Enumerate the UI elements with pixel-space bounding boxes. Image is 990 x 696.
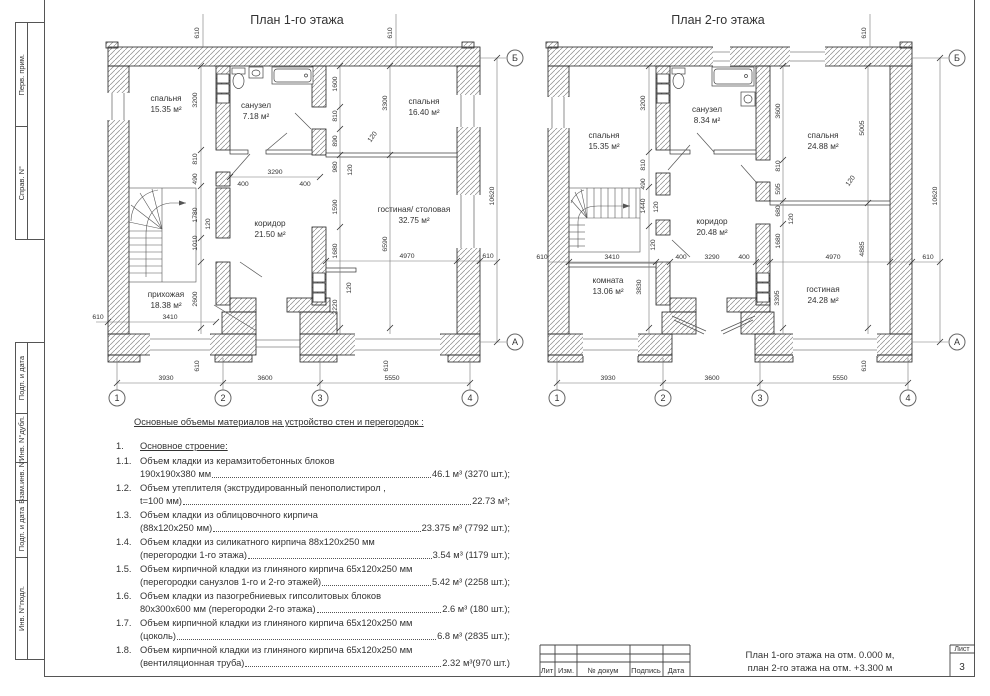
stamp-col-dokum: № докум <box>588 666 619 675</box>
svg-text:4: 4 <box>905 393 910 403</box>
material-value: 46.1 м³ (3270 шт.); <box>432 468 510 481</box>
svg-text:610: 610 <box>922 254 934 261</box>
room-label: спальня <box>588 131 619 140</box>
svg-text:610: 610 <box>482 253 494 260</box>
svg-text:3410: 3410 <box>162 314 177 321</box>
plan1-bathroom-fixtures <box>232 67 313 89</box>
material-item: 1.7. Объем кирпичной кладки из глиняного… <box>100 617 510 643</box>
svg-text:610: 610 <box>92 314 104 321</box>
room-label: гостиная/ столовая <box>378 205 451 214</box>
floor-plan-1-drawing: План 1-го этажа <box>90 5 538 410</box>
dotted-leader <box>212 477 431 478</box>
svg-text:1440: 1440 <box>640 198 647 213</box>
svg-text:400: 400 <box>299 181 311 188</box>
margin-cell-blank <box>27 342 45 660</box>
plan2-stairs <box>569 188 640 252</box>
room-label: спальня <box>408 97 439 106</box>
room-area: 15.35 м² <box>150 105 181 114</box>
margin-label: Инв. N°дубл. <box>17 416 26 461</box>
material-value: 2.6 м³ (180 шт.); <box>442 603 510 616</box>
svg-text:3290: 3290 <box>704 254 719 261</box>
svg-text:490: 490 <box>640 178 647 190</box>
svg-text:120: 120 <box>845 174 857 187</box>
svg-text:2: 2 <box>660 393 665 403</box>
drawing-title-line2: план 2-го этажа на отм. +3.300 м <box>748 663 893 674</box>
room-label: спальня <box>150 94 181 103</box>
room-area: 7.18 м² <box>243 112 270 121</box>
svg-text:3600: 3600 <box>704 375 719 382</box>
svg-text:3930: 3930 <box>600 375 615 382</box>
dotted-leader <box>322 585 431 586</box>
material-item: 1.1. Объем кладки из керамзитобетонных б… <box>100 455 510 481</box>
dotted-leader <box>248 558 432 559</box>
svg-text:3: 3 <box>317 393 322 403</box>
material-line1: Объем кладки из облицовочного кирпича <box>140 509 510 522</box>
materials-list: Основные объемы материалов на устройство… <box>100 416 510 671</box>
stamp-col-podpis: Подпись <box>631 666 661 675</box>
svg-text:120: 120 <box>347 164 354 176</box>
plan1-stairs <box>129 188 196 282</box>
svg-text:400: 400 <box>738 254 750 261</box>
plan1-room-labels: спальня 15.35 м² санузел 7.18 м² спальня… <box>148 94 451 310</box>
svg-text:1590: 1590 <box>332 199 339 214</box>
room-label: прихожая <box>148 290 185 299</box>
dotted-leader <box>245 666 441 667</box>
svg-text:10620: 10620 <box>932 186 939 205</box>
svg-text:595: 595 <box>775 183 782 195</box>
svg-text:120: 120 <box>367 130 379 143</box>
material-value: 22.73 м³; <box>472 495 510 508</box>
svg-text:Б: Б <box>512 53 518 63</box>
room-label: коридор <box>696 217 728 226</box>
room-area: 8.34 м² <box>694 116 721 125</box>
material-item: 1.8. Объем кирпичной кладки из глиняного… <box>100 644 510 670</box>
svg-text:2: 2 <box>220 393 225 403</box>
plan2-partitions <box>569 150 890 267</box>
material-value: 5.42 м³ (2258 шт.); <box>432 576 510 589</box>
material-value: 3.54 м³ (1179 шт.); <box>433 549 510 562</box>
svg-text:1780: 1780 <box>192 207 199 222</box>
svg-text:3290: 3290 <box>267 169 282 176</box>
material-item: 1.3. Объем кладки из облицовочного кирпи… <box>100 509 510 535</box>
svg-text:1680: 1680 <box>775 233 782 248</box>
material-item: 1.4. Объем кладки из силикатного кирпича… <box>100 536 510 562</box>
material-line1: Объем кладки из керамзитобетонных блоков <box>140 455 510 468</box>
svg-text:120: 120 <box>650 239 657 251</box>
svg-text:10620: 10620 <box>489 186 496 205</box>
margin-label: Взам.инв. N° <box>17 459 26 504</box>
svg-text:1: 1 <box>114 393 119 403</box>
svg-text:610: 610 <box>387 27 394 39</box>
stamp-col-data: Дата <box>668 666 685 675</box>
room-label: санузел <box>692 105 722 114</box>
svg-text:5550: 5550 <box>832 375 847 382</box>
room-label: коридор <box>254 219 286 228</box>
svg-text:2220: 2220 <box>332 299 339 314</box>
svg-text:3410: 3410 <box>604 254 619 261</box>
svg-text:А: А <box>512 337 518 347</box>
dotted-leader <box>183 504 471 505</box>
svg-text:3600: 3600 <box>257 375 272 382</box>
svg-text:810: 810 <box>640 159 647 171</box>
svg-text:А: А <box>954 337 960 347</box>
material-line1: Объем кирпичной кладки из глиняного кирп… <box>140 644 510 657</box>
plan1-vent-blocks <box>217 74 325 302</box>
margin-label: Справ. N° <box>17 166 26 200</box>
plan2-bathroom-fixtures <box>672 67 755 106</box>
svg-text:4: 4 <box>467 393 472 403</box>
materials-title: Основные объемы материалов на устройство… <box>134 416 510 429</box>
margin-cell-blank <box>27 22 45 240</box>
svg-text:3395: 3395 <box>774 290 781 305</box>
title-block: Лит Изм. № докум Подпись Дата План 1-ого… <box>535 640 980 680</box>
svg-text:610: 610 <box>861 360 868 372</box>
margin-label: Перв. прим. <box>17 54 26 96</box>
svg-text:5550: 5550 <box>384 375 399 382</box>
svg-text:3300: 3300 <box>382 95 389 110</box>
svg-text:3830: 3830 <box>636 279 643 294</box>
material-line1: Объем утеплителя (экструдированный пеноп… <box>140 482 510 495</box>
material-value: 23.375 м³ (7792 шт.); <box>422 522 510 535</box>
svg-text:6590: 6590 <box>382 236 389 251</box>
svg-text:890: 890 <box>332 135 339 147</box>
plan2-title: План 2-го этажа <box>671 13 764 27</box>
room-area: 20.48 м² <box>696 228 727 237</box>
room-label: спальня <box>807 131 838 140</box>
room-area: 24.88 м² <box>807 142 838 151</box>
materials-section: 1. Основное строение: <box>100 440 510 453</box>
svg-text:810: 810 <box>775 160 782 172</box>
svg-text:610: 610 <box>383 360 390 372</box>
drawing-sheet: { "sheet": { "margin_labels": ["Перв. пр… <box>0 0 990 696</box>
toilet-icon <box>672 68 685 74</box>
title-block-headers: Лит Изм. № докум Подпись Дата <box>541 666 685 675</box>
svg-text:5005: 5005 <box>859 120 866 135</box>
svg-text:4970: 4970 <box>399 253 414 260</box>
material-item: 1.5. Объем кирпичной кладки из глиняного… <box>100 563 510 589</box>
room-label: санузел <box>241 101 271 110</box>
svg-text:120: 120 <box>788 213 795 225</box>
margin-label: Инв. N°подл. <box>17 586 26 631</box>
svg-text:1010: 1010 <box>192 235 199 250</box>
svg-text:980: 980 <box>332 161 339 173</box>
svg-text:120: 120 <box>346 282 353 294</box>
dotted-leader <box>213 531 420 532</box>
svg-text:610: 610 <box>194 27 201 39</box>
svg-text:400: 400 <box>675 254 687 261</box>
svg-text:810: 810 <box>192 153 199 165</box>
material-line1: Объем кладки из силикатного кирпича 88х1… <box>140 536 510 549</box>
svg-text:3930: 3930 <box>158 375 173 382</box>
room-area: 21.50 м² <box>254 230 285 239</box>
svg-text:610: 610 <box>536 254 548 261</box>
svg-text:490: 490 <box>192 173 199 185</box>
section-number: 1. <box>116 440 124 453</box>
svg-text:1600: 1600 <box>332 76 339 91</box>
svg-text:3200: 3200 <box>192 92 199 107</box>
svg-text:610: 610 <box>194 360 201 372</box>
material-item: 1.6. Объем кладки из пазогребниевых гипс… <box>100 590 510 616</box>
svg-text:1680: 1680 <box>332 243 339 258</box>
dotted-leader <box>317 612 442 613</box>
svg-text:3: 3 <box>757 393 762 403</box>
margin-label: Подп. и дата <box>17 507 26 551</box>
dotted-leader <box>177 639 436 640</box>
room-area: 15.35 м² <box>588 142 619 151</box>
material-line1: Объем кирпичной кладки из глиняного кирп… <box>140 563 510 576</box>
toilet-icon <box>232 68 245 74</box>
drawing-title: План 1-ого этажа на отм. 0.000 м, план 2… <box>746 650 895 674</box>
drawing-title-line1: План 1-ого этажа на отм. 0.000 м, <box>746 650 895 661</box>
room-area: 24.28 м² <box>807 296 838 305</box>
material-item: 1.2. Объем утеплителя (экструдированный … <box>100 482 510 508</box>
room-label: гостиная <box>806 285 839 294</box>
material-value: 2.32 м³(970 шт.) <box>442 657 510 670</box>
floor-plan-2-drawing: План 2-го этажа <box>535 5 985 410</box>
room-area: 32.75 м² <box>398 216 429 225</box>
margin-label: Подп. и дата <box>17 356 26 400</box>
room-label: комната <box>593 276 624 285</box>
room-area: 16.40 м² <box>408 108 439 117</box>
svg-text:4885: 4885 <box>859 241 866 256</box>
svg-text:1: 1 <box>554 393 559 403</box>
svg-text:610: 610 <box>861 27 868 39</box>
svg-text:2600: 2600 <box>192 291 199 306</box>
room-area: 13.06 м² <box>592 287 623 296</box>
svg-text:Б: Б <box>954 53 960 63</box>
svg-text:120: 120 <box>653 201 660 213</box>
svg-text:680: 680 <box>775 205 782 217</box>
stamp-col-lit: Лит <box>541 666 554 675</box>
room-area: 18.38 м² <box>150 301 181 310</box>
sheet-label: Лист <box>954 646 970 653</box>
svg-text:400: 400 <box>237 181 249 188</box>
section-title: Основное строение: <box>140 441 228 451</box>
plan1-title: План 1-го этажа <box>250 13 343 27</box>
material-line1: Объем кирпичной кладки из глиняного кирп… <box>140 617 510 630</box>
svg-text:120: 120 <box>205 218 212 230</box>
material-line1: Объем кладки из пазогребниевых гипсолито… <box>140 590 510 603</box>
stamp-col-izm: Изм. <box>558 666 574 675</box>
svg-text:4970: 4970 <box>825 254 840 261</box>
svg-text:3600: 3600 <box>775 103 782 118</box>
svg-text:810: 810 <box>332 110 339 122</box>
sheet-number: 3 <box>959 662 965 673</box>
material-value: 6.8 м³ (2835 шт.); <box>437 630 510 643</box>
svg-text:3200: 3200 <box>640 95 647 110</box>
